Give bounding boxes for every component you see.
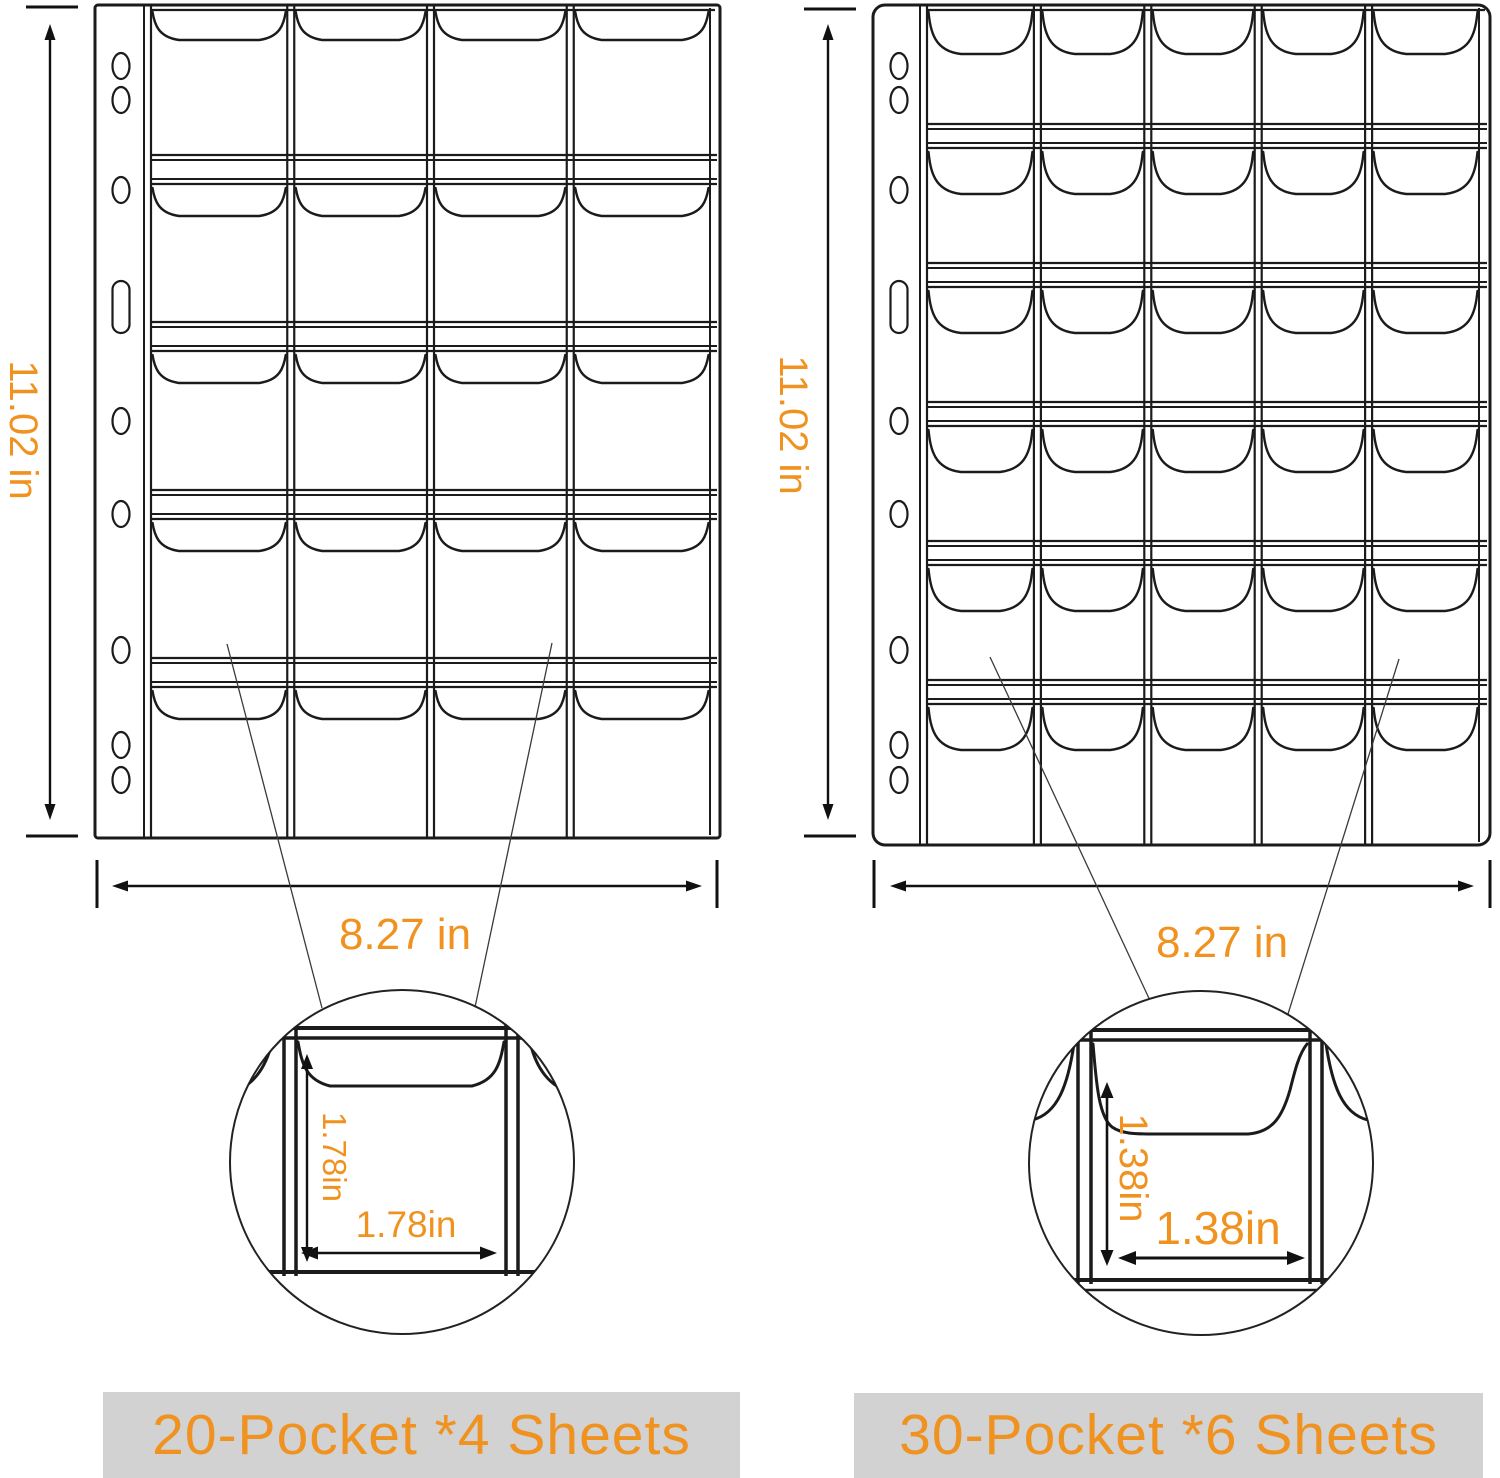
- magnifier-left: [228, 990, 576, 1334]
- sheet30-caption: 30-Pocket *6 Sheets: [854, 1393, 1483, 1478]
- product-diagram: 11.02 in 11.02 in 8.27 in 8.27 in 1.78in…: [0, 0, 1500, 1478]
- sheet-20-drawing: [95, 5, 720, 838]
- sheet30-width-label: 8.27 in: [1122, 920, 1322, 968]
- pocket20-height-label: 1.78in: [315, 1097, 351, 1217]
- pocket20-width-label: 1.78in: [326, 1206, 486, 1246]
- sheet-30-drawing: [873, 5, 1490, 845]
- pocket30-width-label: 1.38in: [1118, 1204, 1318, 1254]
- sheet20-width-label: 8.27 in: [305, 912, 505, 960]
- sheet20-caption: 20-Pocket *4 Sheets: [103, 1392, 740, 1478]
- magnifier-right: [1029, 991, 1373, 1335]
- sheet-20-dimensions: [26, 7, 717, 908]
- sheet30-height-label: 11.02 in: [770, 340, 814, 510]
- sheet20-height-label: 11.02 in: [0, 345, 44, 515]
- pocket-sheets-line-art: [0, 0, 1500, 1478]
